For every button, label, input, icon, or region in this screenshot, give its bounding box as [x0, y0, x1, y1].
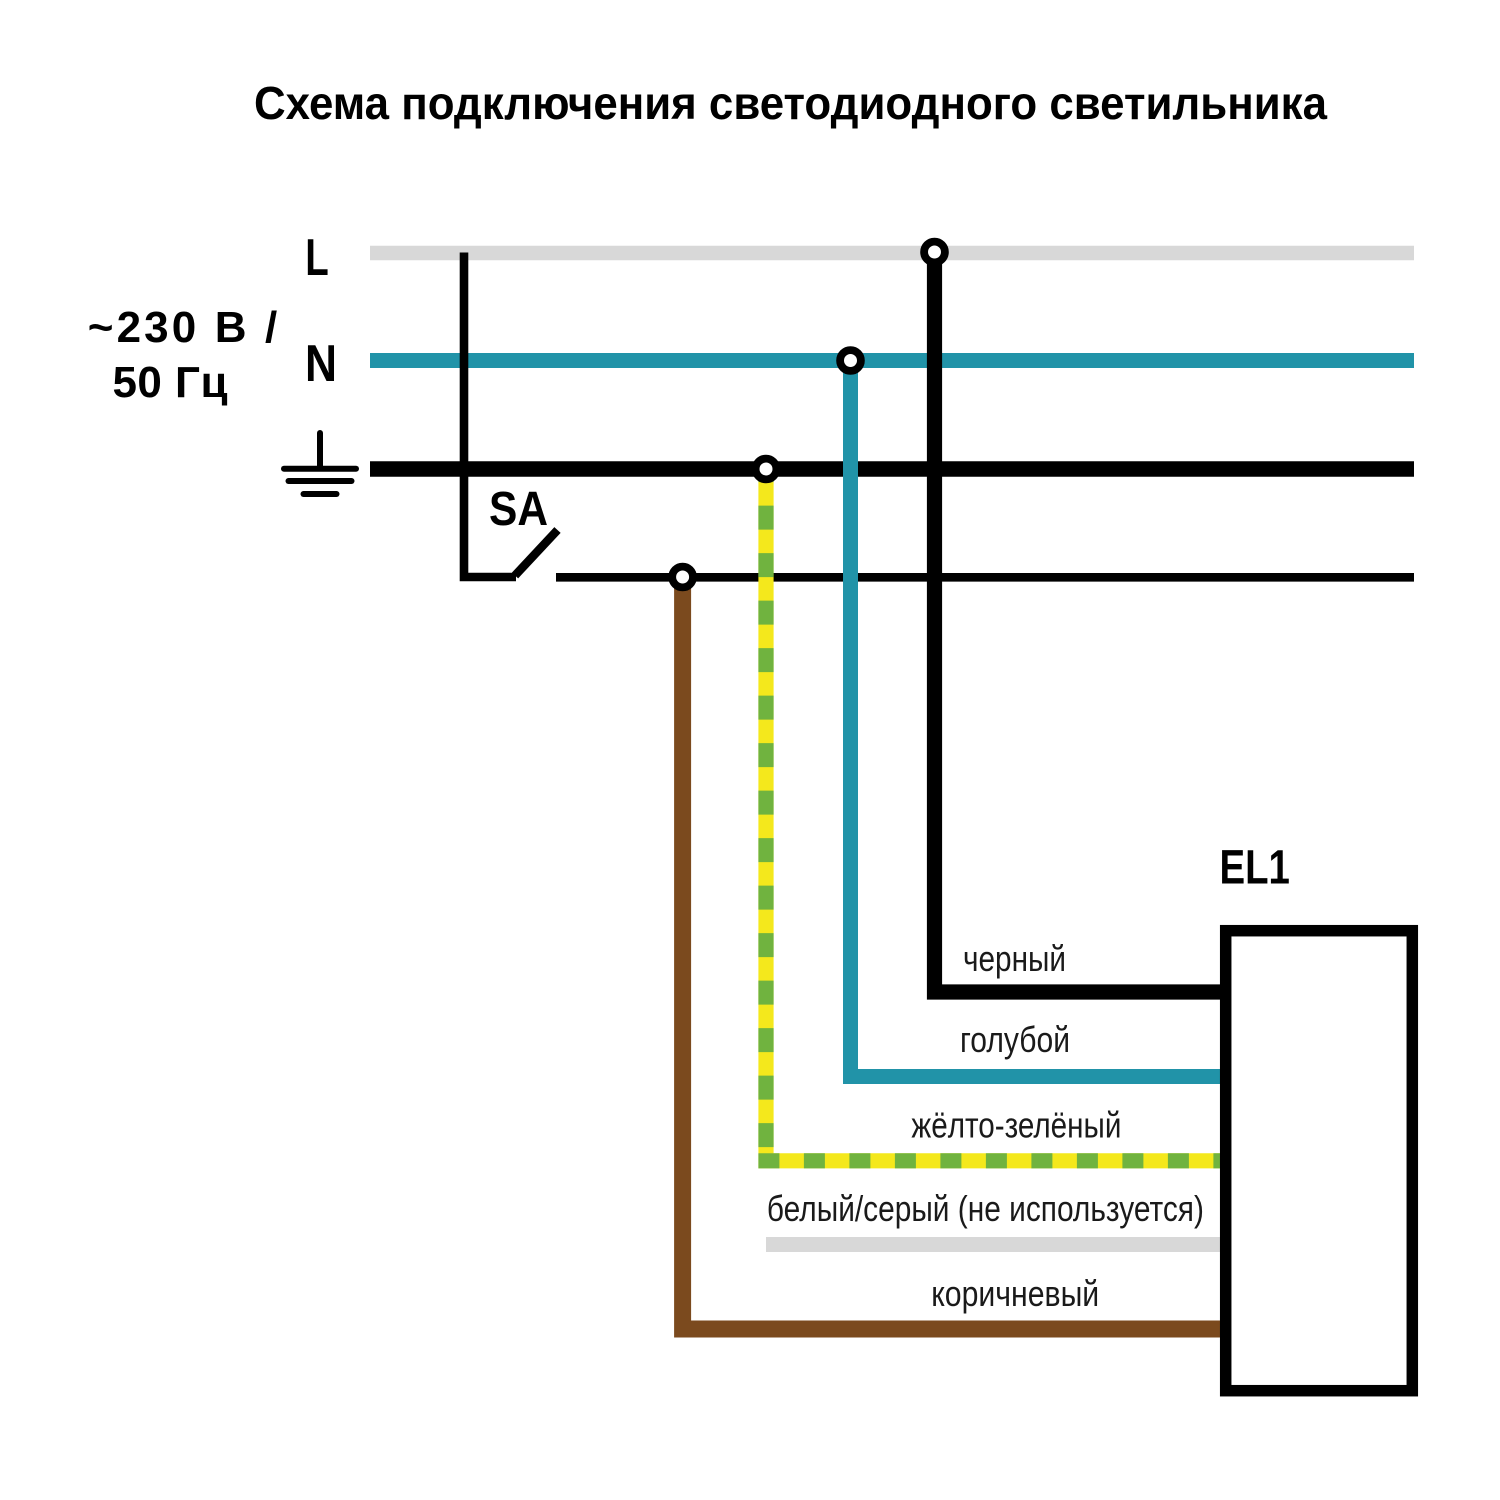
- svg-text:SA: SA: [489, 483, 548, 536]
- svg-text:черный: черный: [963, 938, 1066, 979]
- svg-text:коричневый: коричневый: [931, 1273, 1099, 1314]
- svg-text:голубой: голубой: [960, 1019, 1070, 1060]
- svg-text:EL1: EL1: [1220, 842, 1290, 895]
- svg-text:50 Гц: 50 Гц: [113, 358, 228, 407]
- svg-text:белый/серый (не используется): белый/серый (не используется): [767, 1188, 1204, 1229]
- svg-text:L: L: [305, 229, 329, 287]
- svg-text:жёлто-зелёный: жёлто-зелёный: [911, 1105, 1121, 1146]
- svg-text:Схема подключения светодиодног: Схема подключения светодиодного светильн…: [254, 77, 1327, 129]
- svg-text:N: N: [305, 335, 337, 393]
- svg-text:~230 В /: ~230 В /: [88, 303, 278, 352]
